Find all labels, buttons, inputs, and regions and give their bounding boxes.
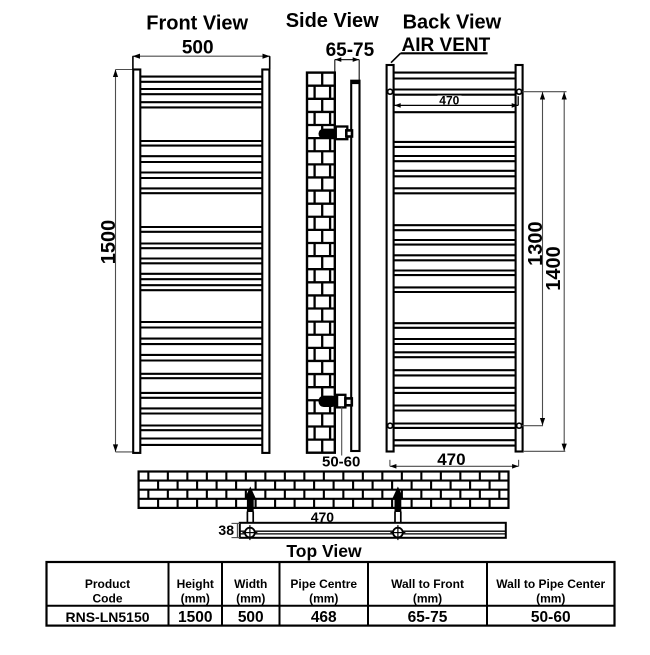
svg-text:470: 470	[439, 93, 459, 107]
svg-text:(mm): (mm)	[181, 591, 210, 605]
svg-text:Width: Width	[234, 577, 267, 591]
svg-text:(mm): (mm)	[236, 591, 265, 605]
svg-text:470: 470	[437, 450, 465, 469]
svg-text:500: 500	[238, 609, 264, 626]
svg-text:65-75: 65-75	[326, 40, 375, 61]
svg-text:50-60: 50-60	[531, 609, 571, 626]
svg-text:65-75: 65-75	[408, 609, 448, 626]
svg-text:Back View: Back View	[403, 11, 502, 33]
svg-text:Code: Code	[93, 591, 123, 605]
svg-text:Height: Height	[177, 577, 214, 591]
svg-text:470: 470	[311, 509, 335, 525]
svg-text:Wall to Front: Wall to Front	[391, 577, 464, 591]
svg-text:1500: 1500	[178, 609, 212, 626]
svg-text:RNS-LN5150: RNS-LN5150	[65, 609, 149, 625]
svg-text:Wall to Pipe Center: Wall to Pipe Center	[496, 577, 605, 591]
svg-text:38: 38	[218, 522, 234, 538]
svg-text:Product: Product	[85, 577, 130, 591]
svg-text:50-60: 50-60	[322, 454, 360, 471]
svg-text:(mm): (mm)	[413, 591, 442, 605]
svg-text:1500: 1500	[98, 220, 120, 265]
svg-text:(mm): (mm)	[309, 591, 338, 605]
svg-text:Top View: Top View	[286, 541, 362, 561]
svg-text:Side View: Side View	[286, 10, 379, 32]
svg-text:Pipe Centre: Pipe Centre	[290, 577, 357, 591]
svg-text:468: 468	[311, 609, 337, 626]
svg-text:Front View: Front View	[146, 12, 248, 34]
svg-text:1400: 1400	[543, 246, 565, 291]
svg-text:(mm): (mm)	[536, 591, 565, 605]
svg-text:500: 500	[182, 37, 214, 58]
